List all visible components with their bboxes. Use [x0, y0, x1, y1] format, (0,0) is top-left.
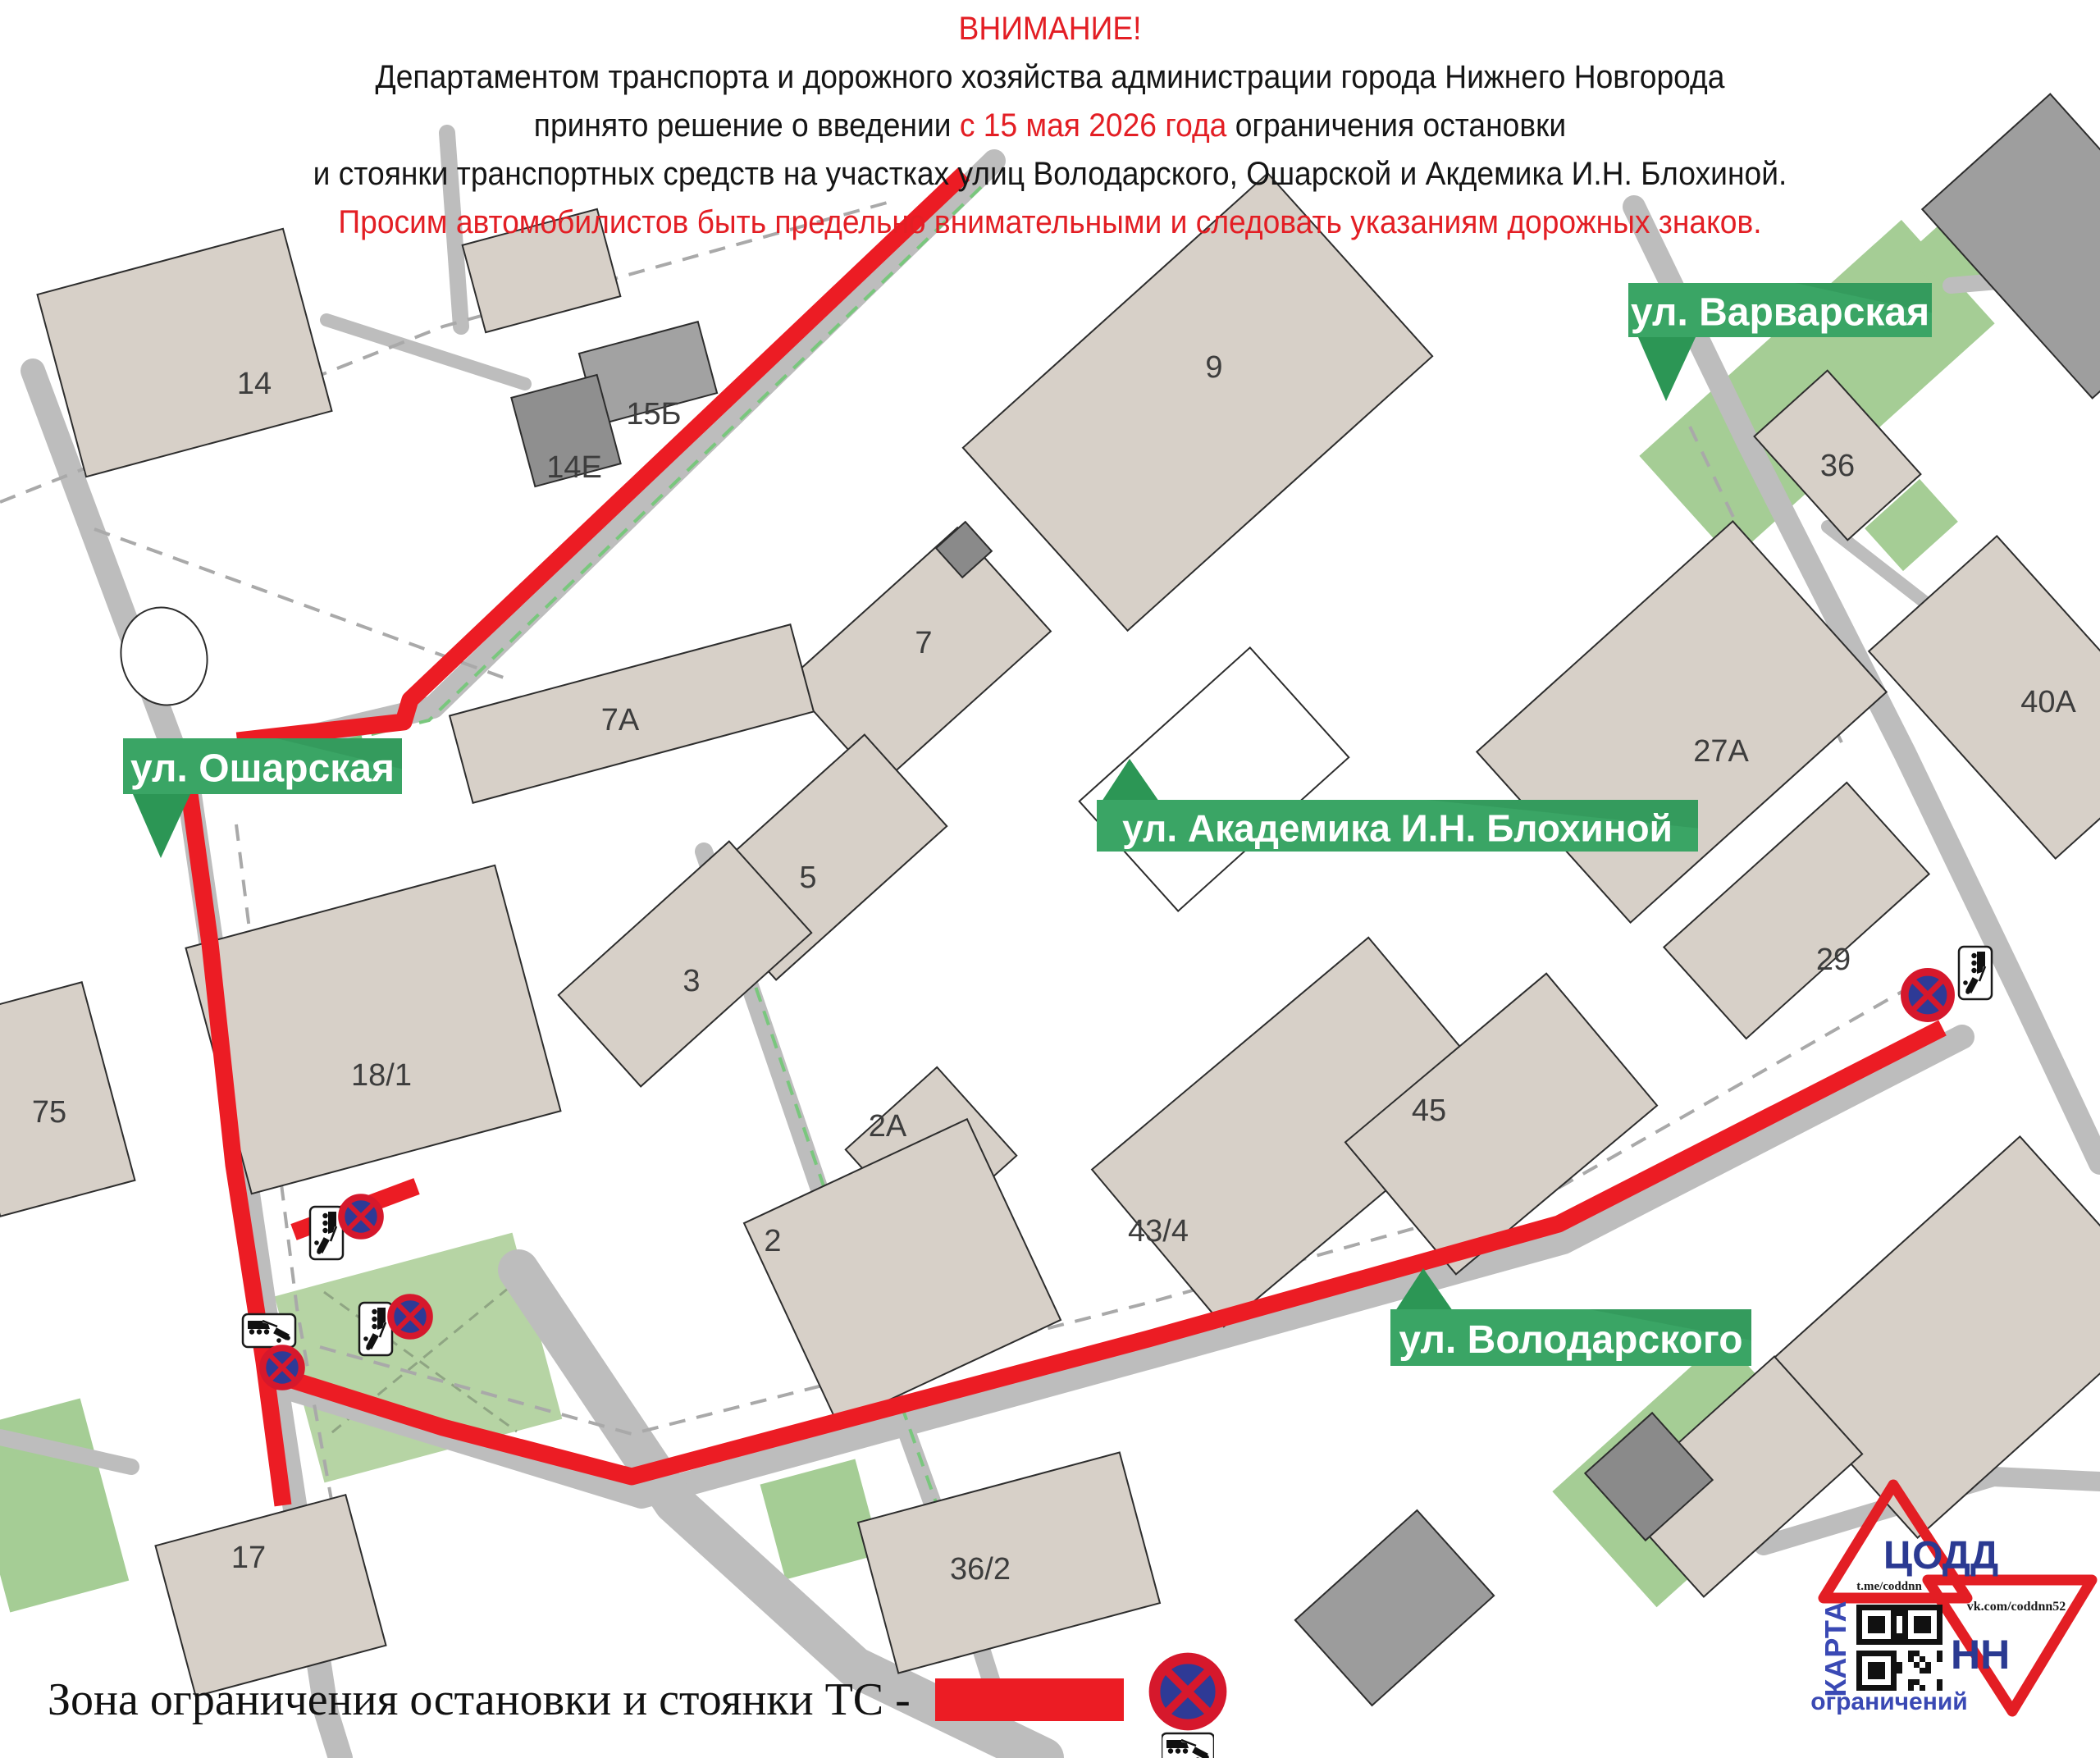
- no-stopping-sign-icon: [1148, 1652, 1227, 1731]
- tow-away-plate-icon: [243, 1314, 295, 1347]
- header-line-3: принято решение о введении с 15 мая 2026…: [74, 102, 2027, 150]
- tow-away-plate-icon: [1162, 1731, 1214, 1758]
- building-number: 5: [799, 861, 816, 895]
- building-number: 29: [1816, 943, 1851, 977]
- header-line-4: и стоянки транспортных средств на участк…: [74, 150, 2027, 199]
- no-stopping-sign-icon: [339, 1194, 383, 1239]
- no-stopping-sign-icon: [260, 1345, 304, 1390]
- map-building: [1295, 1510, 1494, 1705]
- building-number: 43/4: [1128, 1214, 1189, 1249]
- qr-code: [1856, 1605, 1942, 1691]
- building-number: 2А: [869, 1109, 907, 1144]
- street-label-osharskaya: ул. Ошарская: [123, 738, 402, 858]
- building-number: 36/2: [950, 1552, 1011, 1587]
- logo-restrictions-word: ограничений: [1810, 1688, 1968, 1715]
- building-number: 75: [32, 1095, 66, 1130]
- logo-map-word: КАРТА: [1819, 1600, 1852, 1696]
- header-line-2: Департаментом транспорта и дорожного хоз…: [74, 53, 2027, 102]
- logo-city-abbr: НН: [1951, 1632, 2010, 1678]
- logo-vk-link[interactable]: vk.com/coddnn52: [1967, 1600, 2066, 1614]
- building-number: 15Б: [626, 397, 681, 432]
- building-number: 27А: [1693, 734, 1749, 769]
- building-number: 18/1: [351, 1058, 412, 1093]
- header-date-highlight: с 15 мая 2026 года: [960, 107, 1227, 144]
- city-map: ул. Варварскаяул. Ошарскаяул. Академика …: [0, 0, 2100, 1758]
- building-number: 40А: [2020, 685, 2076, 719]
- header-line-3a: принято решение о введении: [534, 107, 960, 144]
- tow-away-plate-icon: [359, 1303, 392, 1355]
- street-label-text: ул. Ошарская: [130, 747, 395, 791]
- building-number: 7А: [601, 703, 640, 737]
- codd-logo: ЦОДД t.me/coddnn vk.com/coddnn52 НН КАРТ…: [1787, 1467, 2100, 1756]
- legend-label: Зона ограничения остановки и стоянки ТС …: [48, 1674, 911, 1726]
- map-building: [0, 982, 135, 1216]
- tow-away-plate-icon: [1959, 947, 1992, 999]
- no-stopping-sign-icon: [1901, 969, 1954, 1021]
- street-label-pointer: [1638, 337, 1696, 401]
- building-number: 2: [764, 1224, 781, 1258]
- legend: Зона ограничения остановки и стоянки ТС …: [48, 1641, 1227, 1758]
- traffic-restriction-announcement: ВНИМАНИЕ! Департаментом транспорта и дор…: [0, 0, 2100, 1758]
- no-stopping-sign-icon: [388, 1295, 432, 1339]
- building-number: 45: [1412, 1094, 1446, 1128]
- building-number: 3: [682, 964, 700, 998]
- tow-away-plate-icon: [310, 1207, 343, 1259]
- header-attention: ВНИМАНИЕ!: [74, 5, 2027, 53]
- street-label-text: ул. Варварская: [1631, 291, 1929, 335]
- building-number: 17: [231, 1541, 266, 1575]
- legend-icons: [1148, 1652, 1227, 1758]
- logo-telegram-link[interactable]: t.me/coddnn: [1856, 1580, 1922, 1593]
- map-green-area: [760, 1459, 881, 1580]
- building-number: 7: [915, 626, 932, 660]
- map-green-area: [0, 1399, 129, 1613]
- street-label-text: ул. Академика И.Н. Блохиной: [1122, 807, 1673, 850]
- header-line-3c: ограничения остановки: [1226, 107, 1566, 144]
- building-number: 14: [237, 367, 272, 401]
- building-number: 9: [1205, 350, 1222, 385]
- header-line-5: Просим автомобилистов быть предельно вни…: [74, 199, 2027, 247]
- street-label-text: ул. Володарского: [1399, 1318, 1742, 1362]
- restriction-line-swatch: [935, 1678, 1124, 1721]
- logo-org-name: ЦОДД: [1883, 1534, 1998, 1578]
- building-number: 36: [1820, 449, 1855, 483]
- header: ВНИМАНИЕ! Департаментом транспорта и дор…: [74, 5, 2027, 247]
- building-number: 14Е: [546, 450, 602, 485]
- map-building: [38, 229, 332, 477]
- map-building: [186, 865, 561, 1194]
